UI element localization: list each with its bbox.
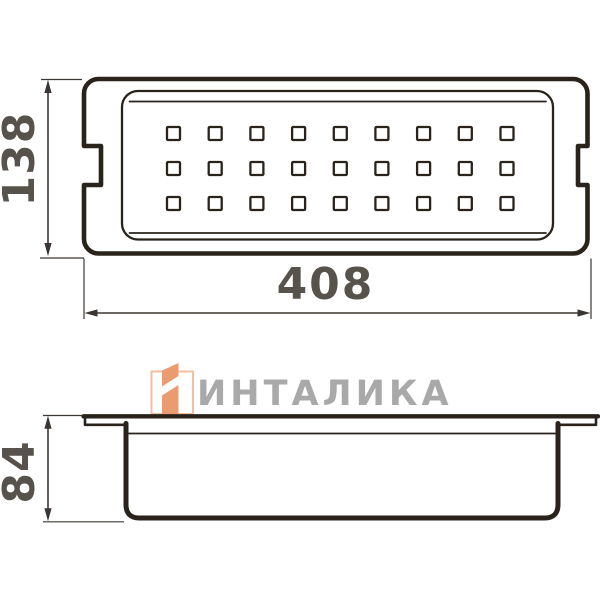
- arrow-down-icon: [44, 508, 51, 521]
- drain-hole: [167, 127, 180, 140]
- hole-grid: [167, 127, 514, 210]
- dim-label-84: 84: [0, 392, 42, 552]
- dim-label-408: 408: [246, 263, 406, 307]
- drain-hole: [459, 127, 472, 140]
- drain-hole: [501, 162, 514, 175]
- arrow-left-icon: [85, 309, 98, 316]
- drain-hole: [292, 162, 305, 175]
- side-view-bowl-body: [126, 424, 558, 519]
- technical-drawing-page: ИНТАЛИКА: [0, 0, 600, 600]
- side-view-rim-left-edge: [85, 418, 127, 425]
- drain-hole: [375, 127, 388, 140]
- drain-hole: [209, 197, 222, 210]
- drain-hole: [459, 162, 472, 175]
- drain-hole: [292, 127, 305, 140]
- drain-hole: [375, 162, 388, 175]
- dimension-84: [43, 416, 124, 522]
- arrow-right-icon: [578, 309, 591, 316]
- drain-hole: [209, 127, 222, 140]
- drain-hole: [501, 197, 514, 210]
- drain-hole: [334, 162, 347, 175]
- drain-hole: [417, 162, 430, 175]
- drain-hole: [250, 162, 263, 175]
- drain-hole: [250, 197, 263, 210]
- dimension-138: [40, 80, 84, 259]
- drain-hole: [501, 127, 514, 140]
- drain-hole: [417, 127, 430, 140]
- drain-hole: [167, 197, 180, 210]
- arrow-down-icon: [44, 243, 51, 256]
- drain-hole: [334, 127, 347, 140]
- drain-hole: [334, 197, 347, 210]
- drain-hole: [459, 197, 472, 210]
- side-view: [84, 416, 599, 518]
- drain-hole: [292, 197, 305, 210]
- top-view: [84, 79, 588, 254]
- drain-hole: [167, 162, 180, 175]
- drain-hole: [417, 197, 430, 210]
- drain-hole: [250, 127, 263, 140]
- arrow-up-icon: [44, 416, 51, 429]
- side-view-rim-right-edge: [558, 418, 596, 425]
- dim-label-138: 138: [0, 79, 42, 239]
- drain-hole: [209, 162, 222, 175]
- drain-hole: [375, 197, 388, 210]
- arrow-up-icon: [44, 80, 51, 93]
